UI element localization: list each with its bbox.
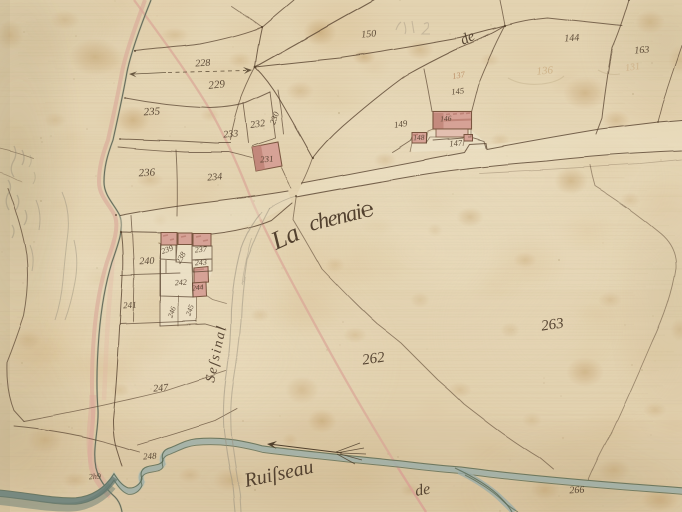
svg-text:235: 235 — [143, 106, 161, 119]
svg-text:231: 231 — [260, 154, 274, 165]
svg-text:131: 131 — [624, 61, 640, 74]
svg-text:234: 234 — [207, 171, 223, 183]
svg-text:163: 163 — [634, 44, 650, 56]
svg-text:147: 147 — [449, 137, 463, 148]
svg-text:236: 236 — [138, 167, 156, 180]
svg-text:233: 233 — [223, 128, 239, 140]
svg-text:148: 148 — [413, 133, 425, 143]
svg-text:244: 244 — [192, 282, 204, 292]
svg-text:145: 145 — [451, 85, 465, 96]
svg-text:241: 241 — [123, 300, 137, 311]
svg-text:228: 228 — [195, 57, 211, 69]
svg-text:144: 144 — [564, 32, 580, 44]
svg-text:243: 243 — [195, 258, 208, 268]
svg-text:266: 266 — [569, 485, 585, 497]
svg-text:248: 248 — [143, 451, 158, 462]
svg-text:237: 237 — [194, 244, 208, 254]
svg-text:146: 146 — [440, 114, 452, 124]
svg-text:262: 262 — [361, 349, 386, 368]
svg-text:150: 150 — [361, 28, 377, 40]
svg-text:247: 247 — [153, 382, 170, 394]
svg-text:263: 263 — [540, 316, 565, 335]
svg-text:240: 240 — [139, 256, 154, 268]
svg-text:232: 232 — [249, 118, 265, 131]
svg-text:242: 242 — [175, 278, 188, 288]
svg-text:149: 149 — [393, 118, 408, 130]
svg-text:136: 136 — [536, 64, 554, 77]
svg-text:2h9: 2h9 — [89, 472, 102, 482]
svg-text:de: de — [414, 481, 432, 500]
svg-text:229: 229 — [208, 78, 226, 92]
